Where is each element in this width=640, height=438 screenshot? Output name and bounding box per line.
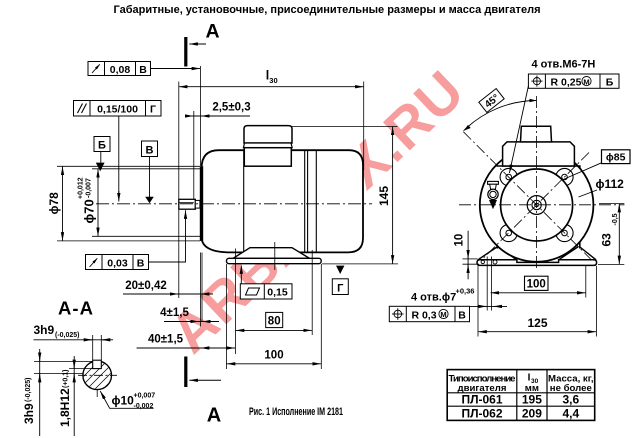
svg-text:4,4: 4,4 bbox=[562, 407, 579, 421]
svg-text:Рис. 1 Исполнение IM 2181: Рис. 1 Исполнение IM 2181 bbox=[249, 406, 343, 418]
svg-text:63: 63 bbox=[600, 233, 614, 247]
svg-text:ϕ10: ϕ10 bbox=[112, 394, 135, 408]
svg-text:0,15: 0,15 bbox=[267, 287, 288, 299]
svg-text:4 отв.М6-7Н: 4 отв.М6-7Н bbox=[532, 59, 596, 71]
svg-text:ϕ85: ϕ85 bbox=[606, 152, 626, 164]
svg-text:R 0,25: R 0,25 bbox=[551, 76, 582, 88]
svg-text:0,08: 0,08 bbox=[110, 64, 131, 76]
svg-text:Г: Г bbox=[150, 104, 156, 116]
svg-text:ПЛ-062: ПЛ-062 bbox=[461, 407, 502, 421]
svg-text:4 отв.ϕ7: 4 отв.ϕ7 bbox=[411, 292, 456, 304]
svg-text:209: 209 bbox=[522, 407, 542, 421]
svg-text:R 0,3: R 0,3 bbox=[411, 309, 436, 321]
svg-text:3h9: 3h9 bbox=[22, 403, 36, 424]
svg-text:-0,007: -0,007 bbox=[86, 178, 93, 198]
svg-text:Г: Г bbox=[337, 282, 344, 294]
svg-text:(-0,025): (-0,025) bbox=[55, 332, 80, 339]
svg-text:М: М bbox=[440, 310, 446, 319]
svg-text:А: А bbox=[205, 21, 219, 43]
svg-text:ϕ112: ϕ112 bbox=[596, 177, 625, 191]
svg-text:0,15/100: 0,15/100 bbox=[97, 104, 138, 116]
svg-text:+0,012: +0,012 bbox=[78, 177, 85, 199]
svg-text:80: 80 bbox=[268, 315, 281, 327]
svg-text:+0,007: +0,007 bbox=[134, 393, 156, 400]
svg-text:100: 100 bbox=[527, 278, 546, 290]
svg-text:ϕ78: ϕ78 bbox=[47, 192, 61, 215]
svg-text:(+0,1): (+0,1) bbox=[63, 370, 70, 388]
svg-text:4±1,5: 4±1,5 bbox=[160, 307, 189, 319]
svg-text:10: 10 bbox=[454, 234, 466, 247]
svg-text:Б: Б bbox=[98, 140, 106, 152]
svg-text:20±0,42: 20±0,42 bbox=[125, 280, 167, 292]
svg-text:А: А bbox=[207, 405, 221, 427]
svg-text:М: М bbox=[583, 77, 589, 86]
svg-text:В: В bbox=[139, 64, 147, 76]
svg-text:125: 125 bbox=[527, 316, 547, 330]
svg-text:0,03: 0,03 bbox=[107, 258, 128, 270]
svg-text:-0,5: -0,5 bbox=[612, 213, 619, 225]
svg-text:А-А: А-А bbox=[58, 298, 94, 319]
svg-text:ϕ70: ϕ70 bbox=[82, 199, 97, 223]
svg-text:2,5±0,3: 2,5±0,3 bbox=[212, 102, 250, 114]
svg-text:Габаритные, установочные, прис: Габаритные, установочные, присоединитель… bbox=[114, 4, 541, 16]
svg-text:+0,36: +0,36 bbox=[456, 287, 475, 296]
svg-text:3h9: 3h9 bbox=[34, 323, 55, 337]
svg-text:3,6: 3,6 bbox=[562, 393, 579, 407]
svg-text:В: В bbox=[137, 258, 145, 270]
svg-text:195: 195 bbox=[522, 393, 542, 407]
svg-text:1,8H12: 1,8H12 bbox=[58, 388, 72, 427]
svg-text:30: 30 bbox=[269, 76, 277, 85]
svg-text:145: 145 bbox=[377, 186, 391, 206]
svg-text:40±1,5: 40±1,5 bbox=[148, 334, 184, 346]
svg-text:В: В bbox=[458, 309, 466, 321]
svg-text:ПЛ-061: ПЛ-061 bbox=[461, 393, 502, 407]
svg-text:(-0,025): (-0,025) bbox=[25, 377, 32, 402]
svg-text:100: 100 bbox=[264, 350, 283, 362]
svg-text:Б: Б bbox=[606, 76, 614, 88]
svg-text:В: В bbox=[146, 145, 154, 157]
